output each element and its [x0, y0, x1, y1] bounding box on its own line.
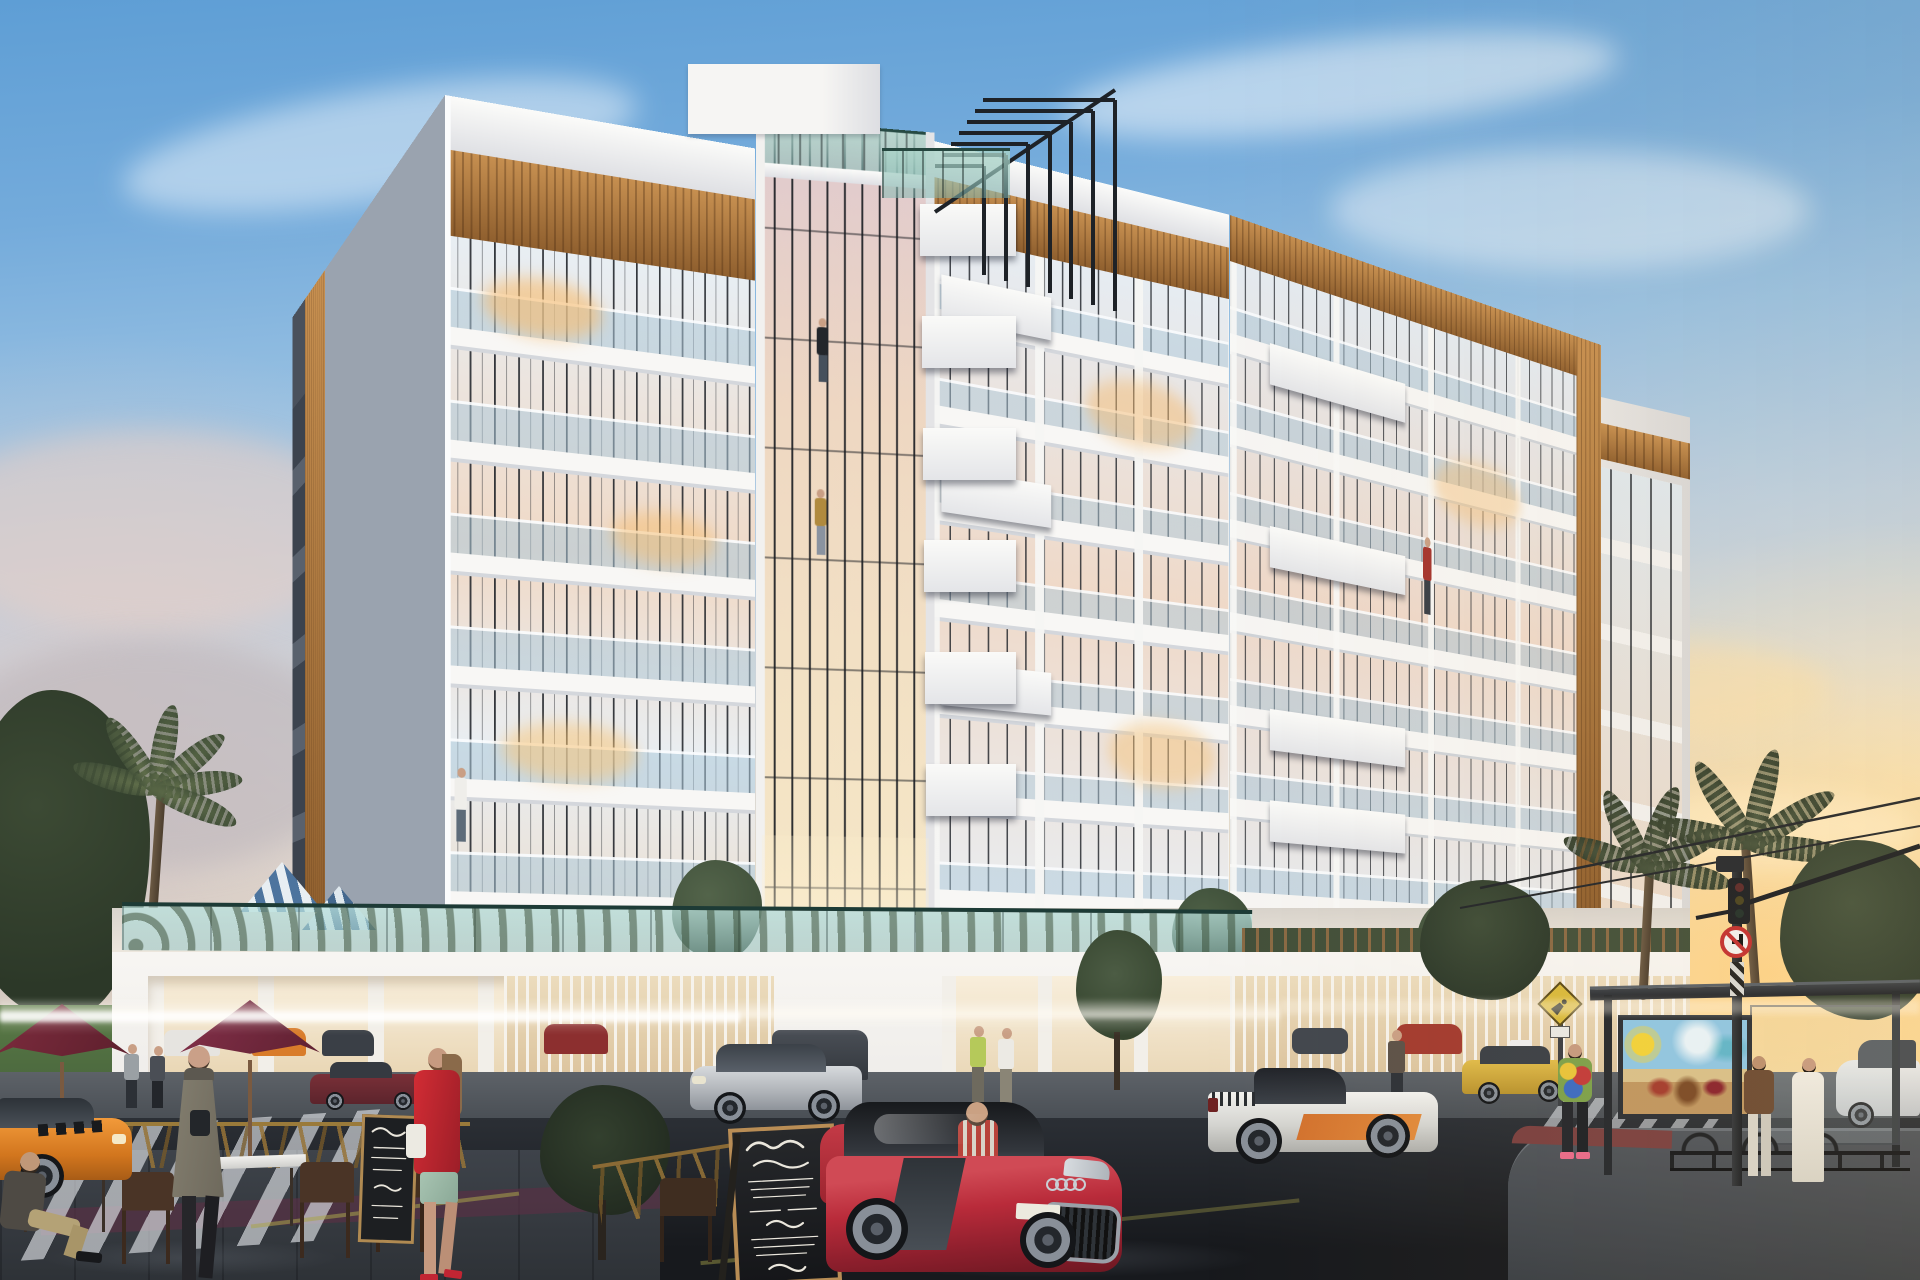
wheel — [326, 1092, 344, 1110]
no-right-turn-sign — [1720, 926, 1752, 958]
roof-terrace-glass — [882, 148, 1010, 198]
balcony-person-dark — [815, 318, 831, 383]
headlight — [112, 1134, 126, 1144]
wheel — [1020, 1212, 1076, 1268]
box-balcony — [925, 652, 1016, 704]
cafe-chair — [300, 1162, 354, 1258]
umbrella-pole — [248, 1060, 252, 1168]
box-balcony — [924, 540, 1016, 592]
penthouse-volume — [688, 64, 880, 134]
box-balcony — [926, 764, 1016, 816]
car-glass — [716, 1044, 826, 1072]
woman-red-coat — [398, 1048, 482, 1280]
overhead-cables — [1400, 740, 1920, 940]
taillight — [1208, 1098, 1218, 1112]
left-wing-front-facade — [445, 95, 755, 921]
cloud-wisp — [1330, 150, 1810, 270]
signal-head — [1728, 878, 1750, 924]
girl-tie-dye-hoodie — [1550, 1044, 1606, 1164]
box-balcony — [923, 428, 1016, 480]
wheel — [1366, 1114, 1410, 1158]
balcony-person-white-shirt — [453, 767, 470, 844]
car-canopy — [1254, 1068, 1346, 1104]
red-sports-car-audi-r8 — [816, 1094, 1126, 1280]
scene-canvas: Photorealistic dusk rendering of a moder… — [0, 0, 1920, 1280]
woman-grey-coat — [160, 1044, 236, 1280]
sidewalk-tree-trunk — [1114, 1032, 1120, 1090]
cafe-chair — [660, 1178, 716, 1262]
lens-flare-streak — [1280, 1000, 1920, 1014]
bus-stop-group — [1740, 1056, 1850, 1192]
wheel — [1478, 1082, 1500, 1104]
small-plate — [1550, 1026, 1570, 1038]
wheel — [846, 1198, 908, 1260]
garage-car-dark2 — [1292, 1028, 1348, 1054]
podium-glass-parapet — [122, 902, 1252, 958]
windshield-reflection — [874, 1114, 1024, 1144]
balcony-person-gold — [813, 489, 829, 555]
white-supercar-lamborghini — [1208, 1062, 1440, 1166]
timber-edge-column — [305, 270, 325, 942]
audi-rings-badge — [1073, 1178, 1086, 1191]
lens-flare-streak — [0, 1012, 740, 1022]
headlight — [692, 1076, 706, 1084]
car-glass — [330, 1062, 392, 1078]
signal-camera — [1716, 856, 1744, 872]
roof-pergola-frames — [875, 80, 1135, 325]
wheel — [1236, 1118, 1282, 1164]
balcony-floors — [445, 235, 755, 921]
wheel — [714, 1092, 746, 1124]
balcony-person-red-jacket — [1421, 536, 1432, 616]
rear-deck-slats — [1212, 1092, 1256, 1106]
pole-hazard-stripes — [1730, 962, 1744, 996]
seated-cafe-man — [0, 1152, 106, 1272]
corner-pier — [445, 95, 451, 913]
